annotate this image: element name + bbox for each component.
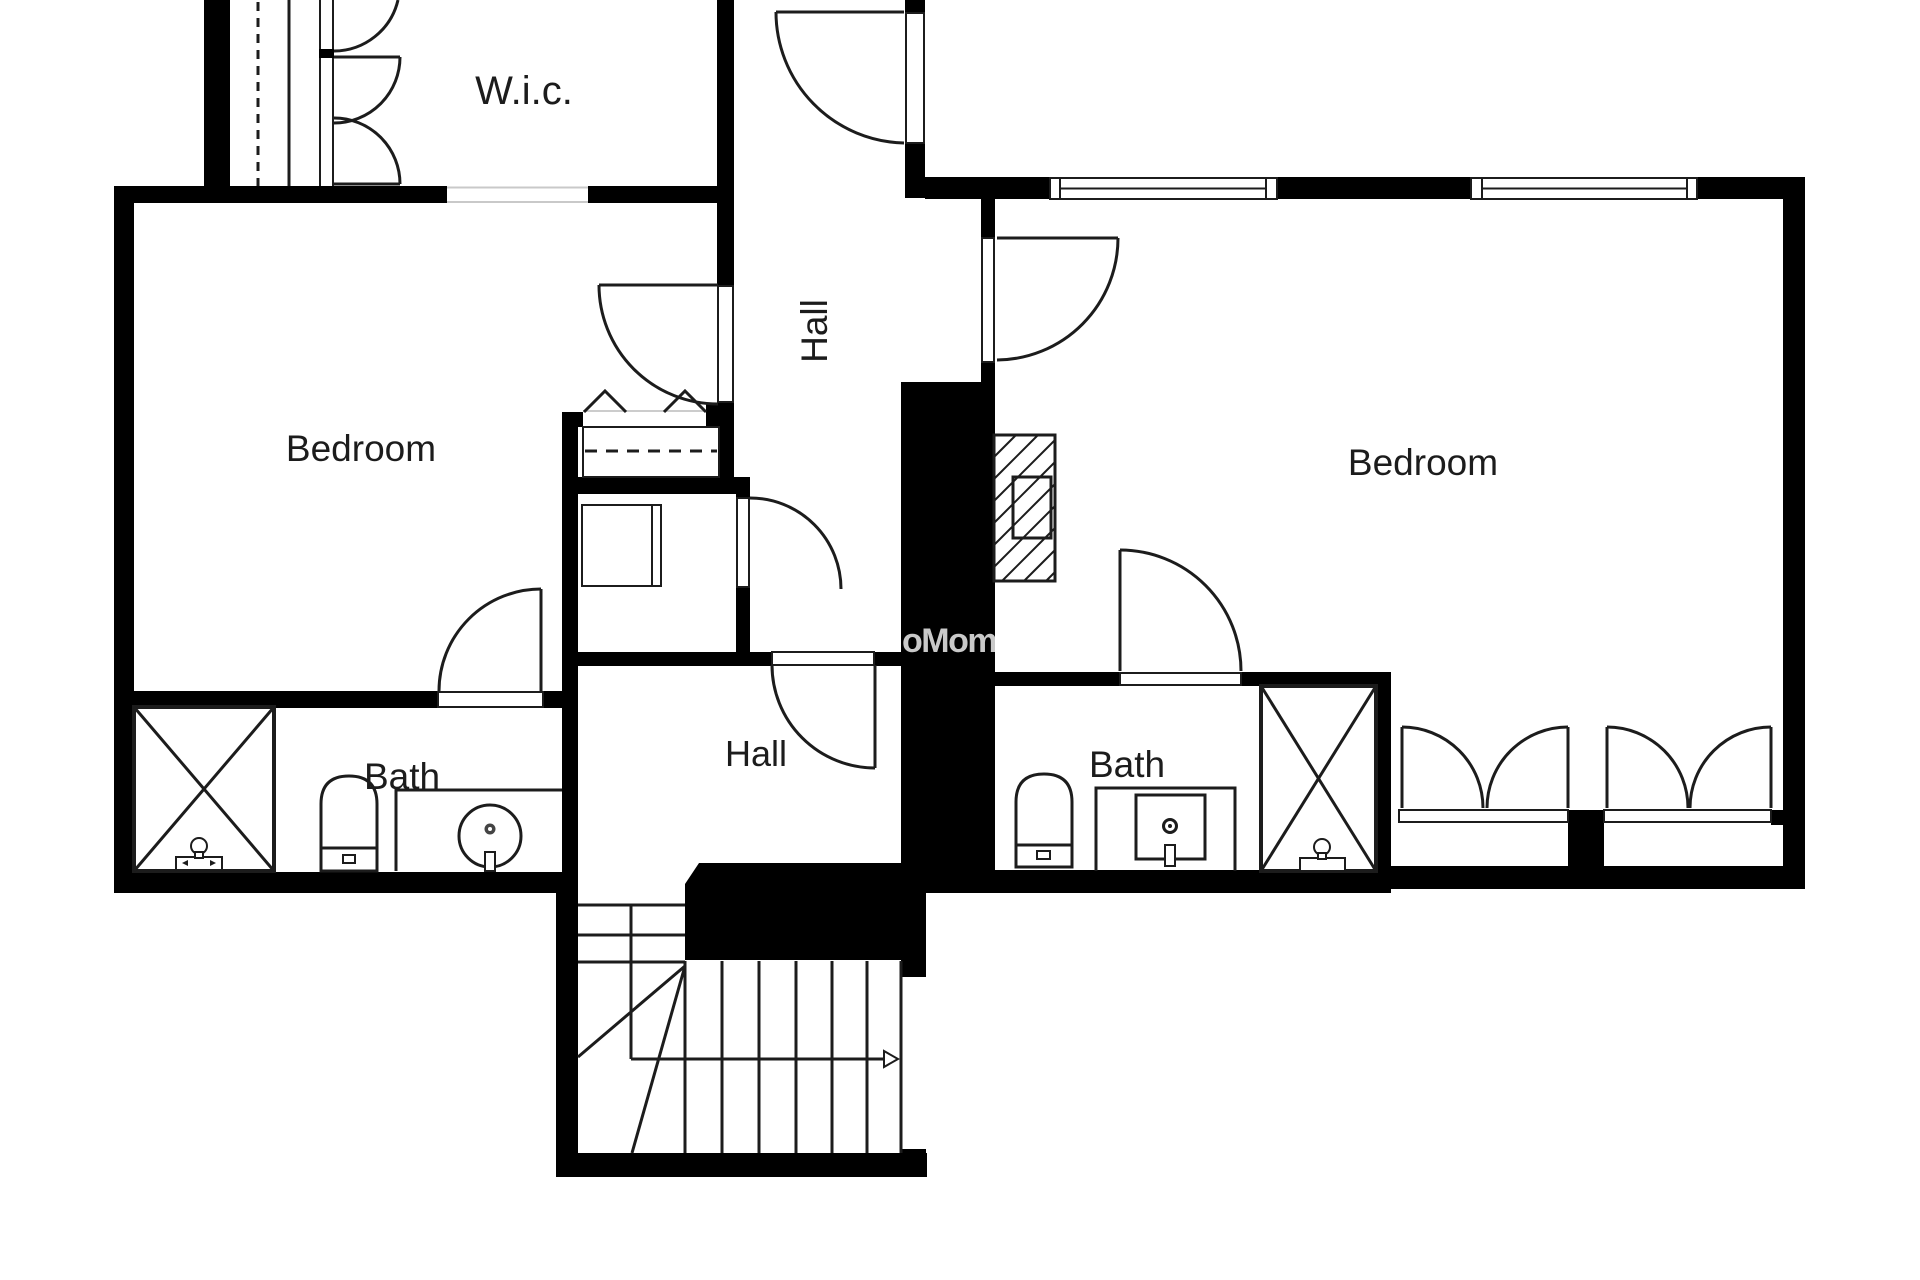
- svg-text:Hall: Hall: [794, 299, 835, 363]
- svg-text:Hall: Hall: [725, 733, 787, 774]
- svg-text:Bath: Bath: [364, 756, 440, 797]
- svg-text:W.i.c.: W.i.c.: [475, 69, 573, 113]
- svg-text:Bedroom: Bedroom: [1348, 442, 1498, 483]
- svg-text:Bedroom: Bedroom: [286, 428, 436, 469]
- svg-text:Bath: Bath: [1089, 744, 1165, 785]
